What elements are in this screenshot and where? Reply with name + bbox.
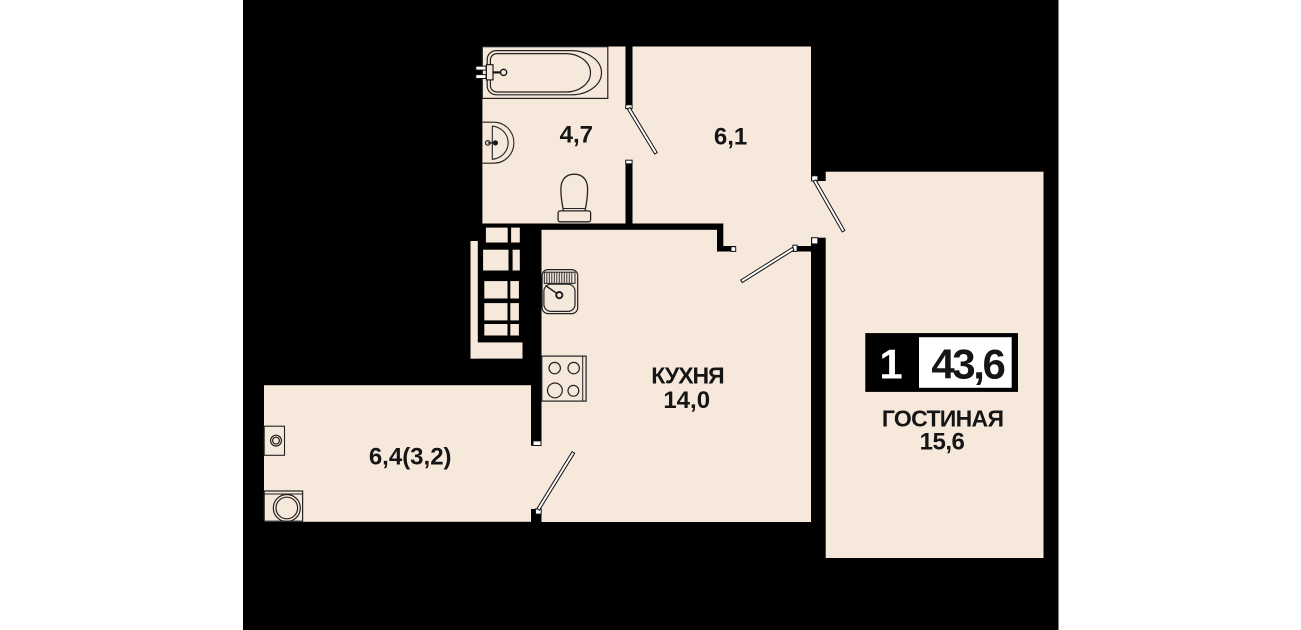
- svg-text:КУХНЯ: КУХНЯ: [651, 362, 723, 388]
- svg-text:6,4(3,2): 6,4(3,2): [369, 443, 452, 470]
- svg-text:1: 1: [879, 340, 902, 387]
- svg-text:43,6: 43,6: [931, 341, 1004, 388]
- svg-text:6,1: 6,1: [714, 123, 747, 150]
- svg-text:4,7: 4,7: [560, 121, 593, 148]
- svg-text:15,6: 15,6: [920, 428, 965, 455]
- svg-text:14,0: 14,0: [663, 387, 710, 414]
